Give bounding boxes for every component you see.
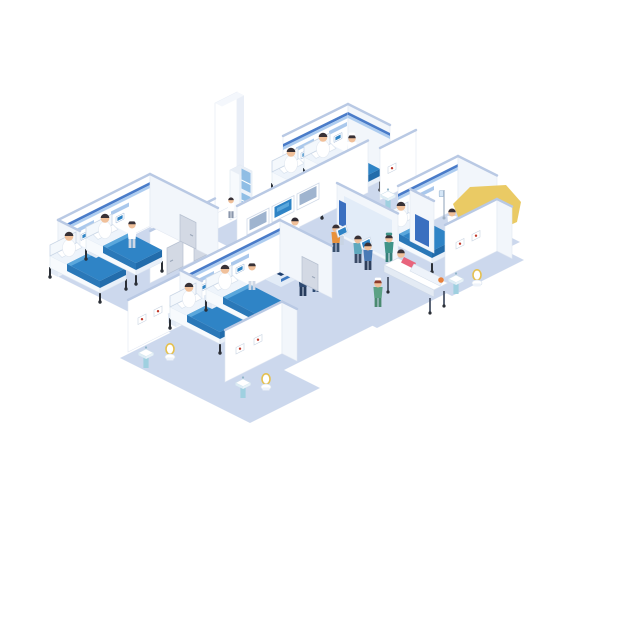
blue-notice-board — [339, 200, 346, 228]
toilet — [165, 344, 175, 361]
hospital-ward-illustration: 护士站 — [0, 0, 640, 640]
toilet — [261, 374, 271, 391]
toilet — [472, 270, 482, 287]
hospital-illustration-canvas: 护士站 — [0, 0, 640, 640]
stretcher-orange-item — [438, 277, 444, 283]
